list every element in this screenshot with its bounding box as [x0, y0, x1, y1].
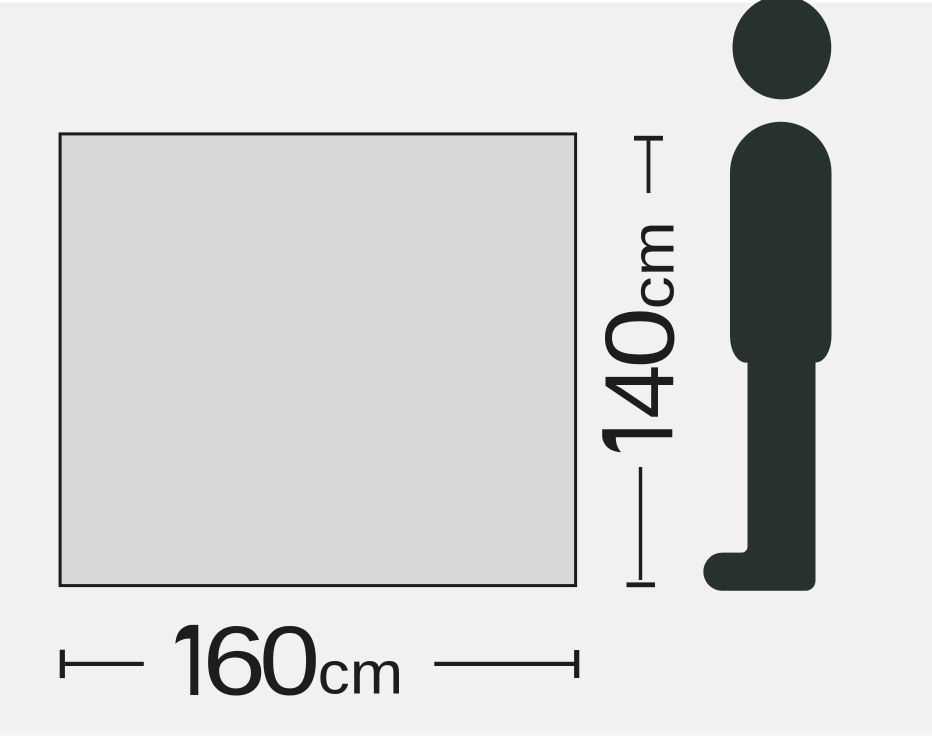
svg-text:cm: cm — [620, 221, 687, 309]
svg-text:cm: cm — [318, 640, 404, 707]
svg-text:6: 6 — [202, 606, 266, 716]
svg-text:4: 4 — [584, 364, 694, 419]
svg-text:0: 0 — [585, 307, 695, 369]
svg-text:0: 0 — [259, 607, 320, 716]
